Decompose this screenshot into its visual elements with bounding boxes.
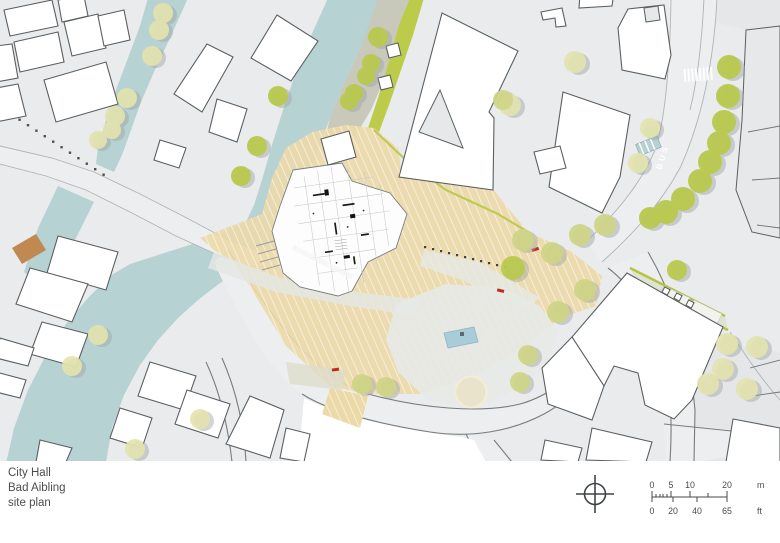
svg-text:10: 10 [685, 480, 695, 490]
feet-unit: ft [757, 506, 762, 516]
drawing-type: site plan [8, 496, 66, 511]
tree [117, 88, 137, 108]
kiosk [378, 75, 393, 90]
svg-text:0: 0 [650, 480, 655, 490]
fountain [460, 332, 464, 336]
project-title: City Hall [8, 466, 66, 481]
tree [518, 345, 538, 365]
scale-bar-labels: 0 5 10 20 m 0 20 40 65 ft [650, 480, 765, 516]
title-block: City Hall Bad Aibling site plan [8, 466, 66, 511]
tree [125, 439, 145, 459]
tree [89, 131, 107, 149]
tree [231, 166, 251, 186]
tree [149, 20, 169, 40]
tree [510, 372, 530, 392]
site-plan-sheet: BUS 0 5 10 20 m 0 20 4 [0, 0, 780, 543]
tree [512, 229, 534, 251]
svg-text:0: 0 [650, 506, 655, 516]
tree [697, 373, 719, 395]
tree [352, 374, 372, 394]
tree [357, 67, 375, 85]
site-plan-drawing: BUS 0 5 10 20 m 0 20 4 [0, 0, 780, 543]
tree [541, 242, 563, 264]
tree [493, 90, 513, 110]
tree [716, 333, 738, 355]
tree [190, 409, 210, 429]
svg-text:20: 20 [668, 506, 678, 516]
tree [667, 260, 687, 280]
svg-text:40: 40 [692, 506, 702, 516]
tree [640, 118, 660, 138]
plaza-circle [456, 377, 487, 408]
tree [62, 356, 82, 376]
meters-unit: m [757, 480, 764, 490]
tree [574, 279, 596, 301]
north-arrow [576, 475, 614, 513]
tree [501, 256, 525, 280]
tree [340, 92, 358, 110]
tree [717, 55, 741, 79]
tree [716, 84, 740, 108]
tree [376, 377, 396, 397]
tree [712, 110, 736, 134]
tree [569, 224, 591, 246]
tree [153, 3, 173, 23]
tree [736, 378, 758, 400]
tree [547, 301, 569, 323]
project-location: Bad Aibling [8, 481, 66, 496]
scale-bar [652, 491, 727, 502]
tree [628, 153, 648, 173]
svg-text:65: 65 [722, 506, 732, 516]
svg-text:20: 20 [722, 480, 732, 490]
svg-text:5: 5 [669, 480, 674, 490]
tree [564, 51, 586, 73]
tree [639, 207, 661, 229]
tree [368, 27, 388, 47]
tree [594, 214, 616, 236]
tree [247, 136, 267, 156]
tree [746, 336, 768, 358]
tree [88, 325, 108, 345]
tree [142, 46, 162, 66]
tree [688, 169, 712, 193]
tree [268, 86, 288, 106]
map-area: BUS [0, 0, 780, 462]
